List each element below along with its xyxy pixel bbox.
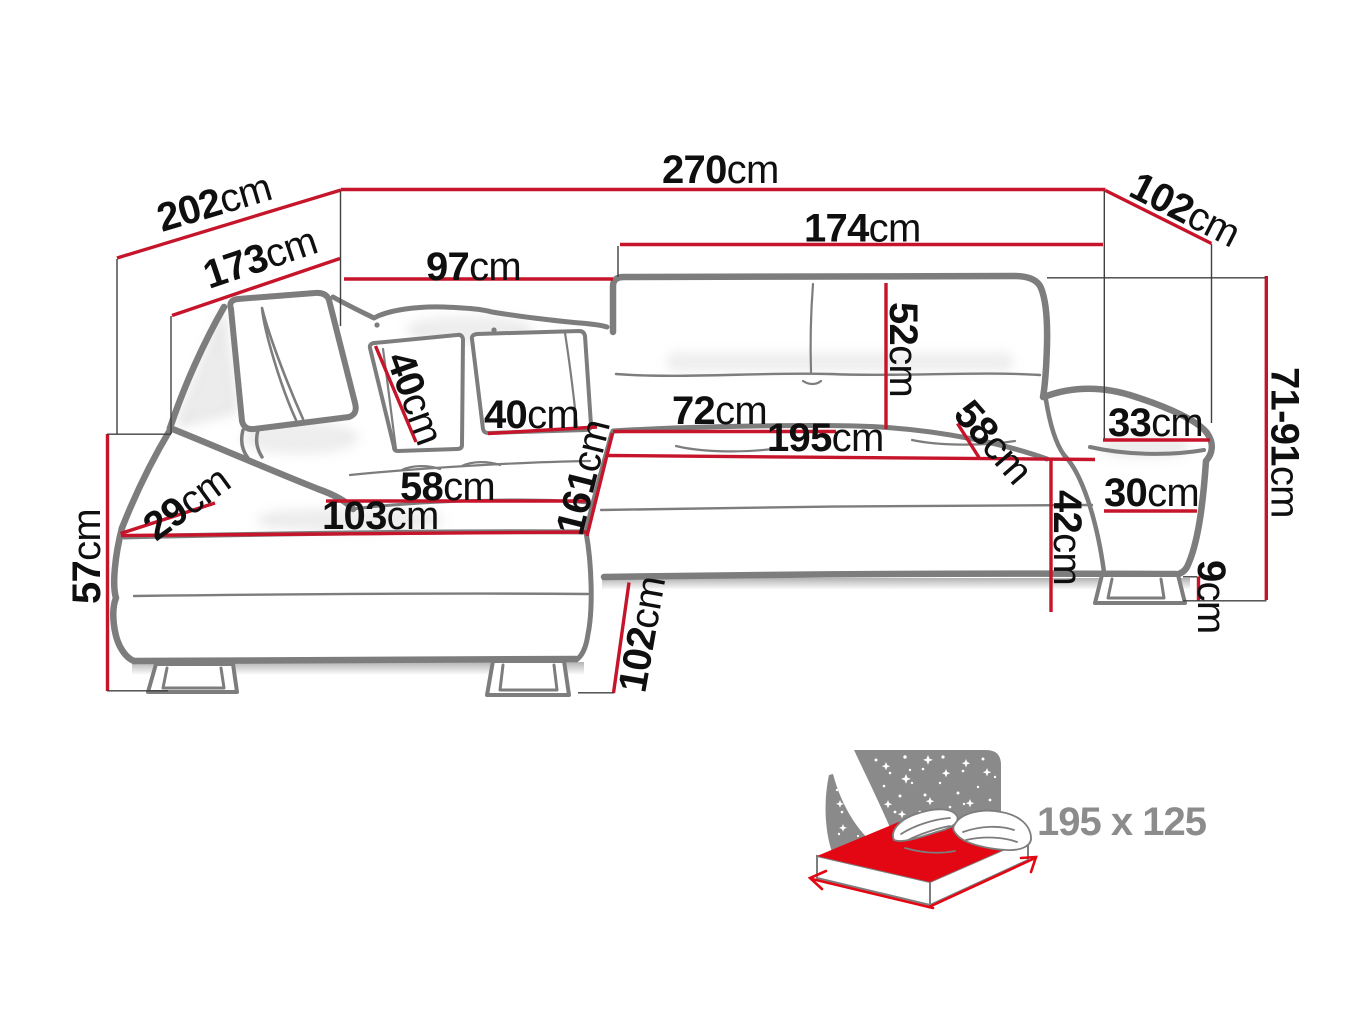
svg-text:30cm: 30cm [1104,471,1199,515]
svg-text:9cm: 9cm [1189,560,1233,633]
svg-text:72cm: 72cm [672,389,767,433]
svg-text:174cm: 174cm [804,207,921,251]
svg-text:52cm: 52cm [881,302,925,397]
svg-text:195cm: 195cm [767,416,884,460]
svg-text:57cm: 57cm [65,509,109,604]
svg-text:102cm: 102cm [611,573,675,695]
svg-text:103cm: 103cm [322,494,439,538]
svg-text:33cm: 33cm [1108,401,1203,445]
svg-text:195 x 125: 195 x 125 [1037,800,1207,844]
svg-text:97cm: 97cm [426,245,521,289]
svg-text:71-91cm: 71-91cm [1263,367,1307,518]
svg-text:42cm: 42cm [1045,490,1089,585]
svg-text:40cm: 40cm [484,393,579,437]
svg-text:102cm: 102cm [1123,164,1247,256]
svg-text:270cm: 270cm [662,148,779,192]
